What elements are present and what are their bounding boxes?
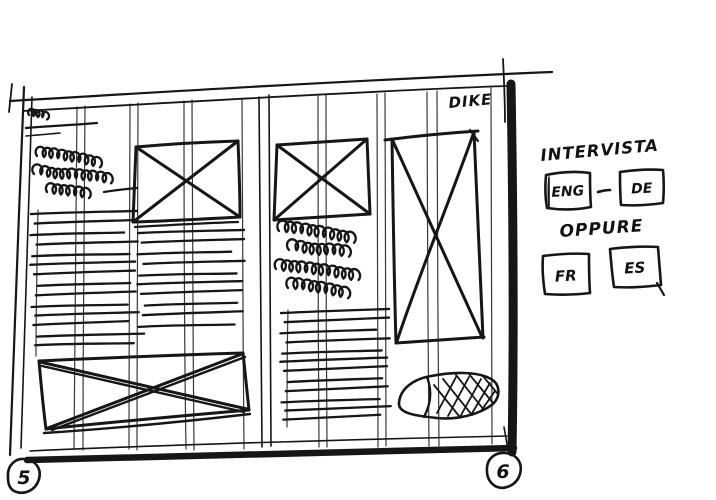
sketch-drawing: DIKE 5 6 INTERVISTA ENG DE OPPURE FR ES xyxy=(0,0,716,500)
image-placeholder-top-right xyxy=(274,139,370,220)
note-or-label: OPPURE xyxy=(559,216,644,242)
image-placeholder-tall-right xyxy=(385,130,484,343)
publication-title: DIKE xyxy=(448,90,493,112)
lang-de-label: DE xyxy=(631,180,653,197)
note-title: INTERVISTA xyxy=(540,136,660,165)
body-text-block-left-col1 xyxy=(30,211,144,345)
caption-lines-left-col2 xyxy=(137,230,244,327)
crosshatch-lines xyxy=(434,374,497,417)
lang-es-label: ES xyxy=(624,258,646,277)
kicker-rule xyxy=(26,123,97,136)
lang-eng-label: ENG xyxy=(551,183,585,201)
lang-fr-label: FR xyxy=(554,266,577,285)
page-number-left: 5 xyxy=(17,467,30,489)
lang-separator-dash xyxy=(598,190,610,192)
center-gutter xyxy=(259,95,271,447)
photo-oval-crosshatch xyxy=(399,373,498,418)
scribble-tail xyxy=(104,188,137,192)
image-placeholder-bottom-left xyxy=(39,353,250,433)
image-placeholder-top-left xyxy=(133,141,240,227)
quote-scribble-block xyxy=(275,221,360,299)
page-number-right: 6 xyxy=(496,461,509,483)
body-text-block-right xyxy=(280,309,390,420)
intro-scribble-block xyxy=(32,147,112,198)
layout-sketch-canvas: DIKE 5 6 INTERVISTA ENG DE OPPURE FR ES xyxy=(0,0,716,500)
margin-notes: INTERVISTA ENG DE OPPURE FR ES xyxy=(540,136,664,295)
